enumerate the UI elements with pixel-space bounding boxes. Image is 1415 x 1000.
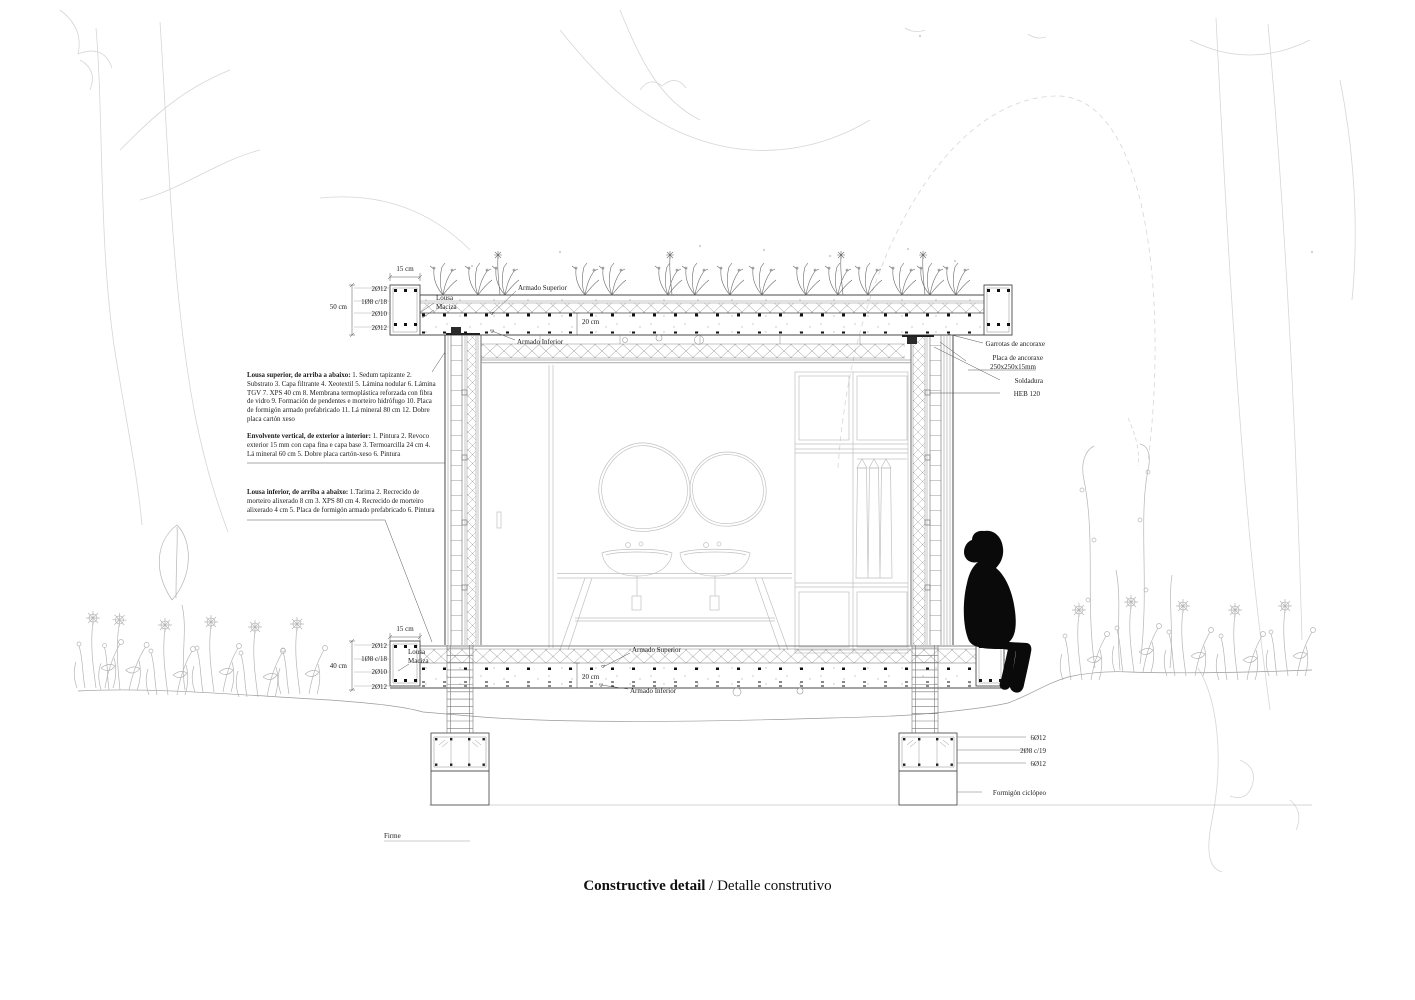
floor-slab-depth-label: 20 cm — [582, 673, 600, 681]
section-drawing: 15 cm 50 cm 2Ø12 1Ø8 c/18 2Ø10 2Ø12 Lous… — [0, 0, 1415, 1000]
wall-assembly-note-heading: Envolvente vertical, de exterior a inter… — [247, 433, 371, 440]
roof-slab-depth-label: 20 cm — [582, 318, 600, 326]
sheet-title: Constructive detail / Detalle construtiv… — [0, 878, 1415, 895]
roof-slab-label-2: Maciza — [436, 303, 457, 311]
floor-rebar4-label: 2Ø12 — [371, 683, 387, 691]
mirror-left — [599, 443, 690, 532]
roof-dim-width-label: 15 cm — [396, 265, 414, 273]
floor-bottom-reinforcement-label: Armado Inferior — [630, 687, 677, 695]
floor-top-reinforcement-label: Armado Superior — [632, 646, 681, 654]
floor-dim-height-label: 40 cm — [330, 662, 348, 670]
beam-label: HEB 120 — [1014, 390, 1041, 398]
roof-parapet-right — [984, 285, 1012, 335]
vanity-counter — [557, 574, 792, 651]
roof-dim-height-label: 50 cm — [330, 303, 348, 311]
sheet-title-primary: Constructive detail — [583, 878, 705, 894]
left-wall — [445, 327, 481, 645]
sheet-title-separator: / — [705, 878, 717, 894]
wardrobe — [795, 372, 908, 653]
floor-rebar2-label: 1Ø8 c/18 — [361, 655, 387, 663]
floor-assembly-note: Lousa inferior, de arriba a abaixo: 1.Ta… — [247, 489, 439, 515]
roof-assembly-note: Lousa superior, de arriba a abaixo: 1. S… — [247, 372, 439, 425]
foundation-rebar-top-label: 6Ø12 — [1030, 734, 1046, 742]
roof-top-reinforcement-label: Armado Superior — [518, 284, 567, 292]
anchor-ties-label: Garrotas de ancoraxe — [986, 340, 1045, 348]
floor-slab-label-2: Maciza — [408, 657, 429, 665]
ground-label: Firme — [384, 832, 401, 840]
sheet-title-secondary: Detalle construtivo — [717, 878, 832, 894]
roof-rebar2-label: 1Ø8 c/18 — [361, 298, 387, 306]
floor-rebar1-label: 2Ø12 — [371, 642, 387, 650]
constructive-detail-sheet: 15 cm 50 cm 2Ø12 1Ø8 c/18 2Ø10 2Ø12 Lous… — [0, 0, 1415, 1000]
seed-dots — [471, 35, 1313, 267]
weld-label: Soldadura — [1015, 377, 1044, 385]
interior-elevation — [481, 363, 911, 653]
anchor-plate-label-2: 250x250x15mm — [990, 363, 1036, 371]
roof-assembly-note-body: 1. Sedum tapizante 2. Substrato 3. Capa … — [247, 372, 436, 423]
floor-assembly-note-heading: Lousa inferior, de arriba a abaixo: — [247, 489, 348, 496]
sink-right — [680, 549, 750, 610]
terrain-lines — [78, 670, 1312, 805]
floor-conduits — [733, 688, 803, 696]
roof-parapet-left — [390, 285, 420, 335]
floor-dim-width-label: 15 cm — [396, 625, 414, 633]
anchor-plate-label-1: Placa de ancoraxe — [992, 354, 1043, 362]
roof-bottom-reinforcement-label: Armado Inferior — [517, 338, 564, 346]
ceiling-conduits — [623, 335, 704, 345]
hanging-clothes — [856, 459, 892, 578]
foundation-rebar-bottom-label: 6Ø12 — [1030, 760, 1046, 768]
foundation-stirrups-label: 2Ø8 c/19 — [1020, 747, 1046, 755]
green-roof-plants — [430, 251, 970, 295]
sink-left — [602, 549, 672, 610]
roof-rebar4-label: 2Ø12 — [371, 324, 387, 332]
wall-assembly-note: Envolvente vertical, de exterior a inter… — [247, 433, 439, 459]
left-meadow-vegetation — [74, 525, 327, 697]
roof-slab-label-1: Lousa — [436, 294, 454, 302]
cyclopean-concrete-label: Formigón ciclópeo — [993, 789, 1047, 797]
roof-rebar1-label: 2Ø12 — [371, 285, 387, 293]
door-handle — [497, 512, 501, 528]
floor-slab — [390, 641, 1005, 696]
roof-assembly-note-heading: Lousa superior, de arriba a abaixo: — [247, 372, 351, 379]
roof-rebar3-label: 2Ø10 — [371, 310, 387, 318]
right-wall — [902, 335, 953, 645]
right-meadow-vegetation — [1060, 444, 1315, 680]
floor-rebar3-label: 2Ø10 — [371, 668, 387, 676]
floor-slab-label-1: Lousa — [408, 648, 426, 656]
mirror-right — [690, 452, 766, 526]
